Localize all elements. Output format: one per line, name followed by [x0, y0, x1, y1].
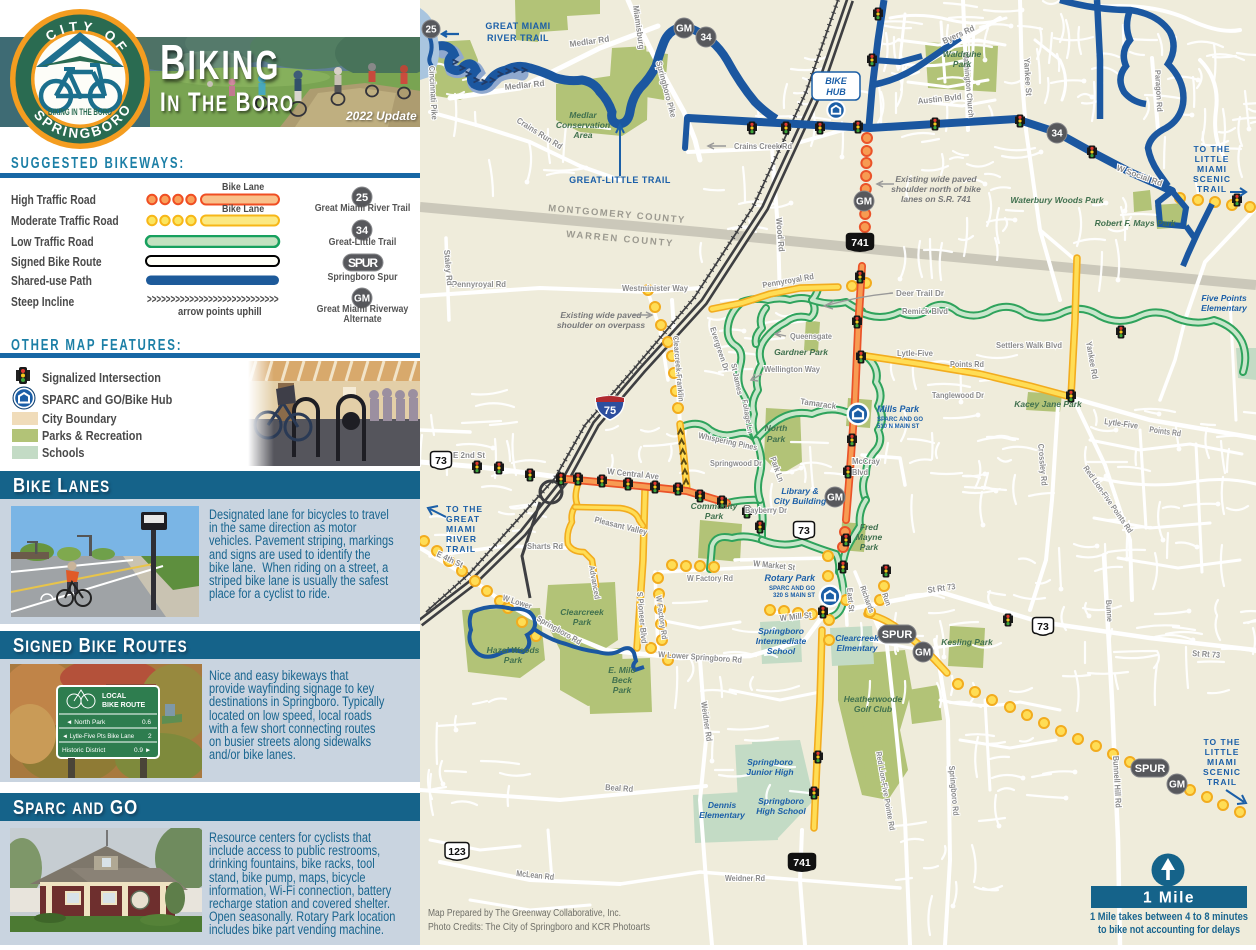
svg-text:Settlers Walk Blvd: Settlers Walk Blvd — [996, 340, 1062, 350]
svg-text:GM: GM — [1169, 780, 1185, 791]
svg-text:GM: GM — [827, 493, 843, 504]
svg-text:Intermediate: Intermediate — [756, 636, 807, 646]
svg-text:GREAT MIAMI: GREAT MIAMI — [485, 21, 550, 31]
svg-text:Clearcreek: Clearcreek — [560, 607, 605, 617]
svg-text:MIAMI: MIAMI — [1197, 164, 1227, 174]
svg-text:E 2nd St: E 2nd St — [453, 450, 485, 460]
svg-text:SPUR: SPUR — [882, 629, 913, 641]
svg-text:North: North — [765, 423, 788, 433]
svg-text:Bayberry Dr: Bayberry Dr — [745, 505, 788, 515]
svg-text:34: 34 — [1051, 129, 1063, 140]
svg-text:LITTLE: LITTLE — [1195, 154, 1230, 164]
svg-text:Five Points: Five Points — [1201, 293, 1247, 303]
svg-text:BIKING IN THE BORO: BIKING IN THE BORO — [48, 107, 112, 118]
svg-text:1 Mile: 1 Mile — [1143, 890, 1195, 907]
svg-text:Park: Park — [953, 59, 973, 69]
svg-text:MIAMI: MIAMI — [1207, 757, 1237, 767]
svg-text:TRAIL: TRAIL — [446, 544, 476, 554]
svg-text:Park: Park — [573, 617, 593, 627]
svg-text:shoulder north of bike: shoulder north of bike — [891, 184, 981, 194]
svg-text:Beal Rd: Beal Rd — [605, 782, 634, 794]
svg-text:2: 2 — [148, 733, 152, 740]
svg-text:Tanglewood Dr: Tanglewood Dr — [932, 390, 985, 400]
svg-text:shoulder on overpass: shoulder on overpass — [557, 320, 646, 330]
svg-text:Springboro: Springboro — [747, 757, 793, 767]
svg-text:Heatherwoode: Heatherwoode — [844, 694, 903, 704]
svg-text:Remick Blvd: Remick Blvd — [902, 306, 948, 316]
svg-text:◄ North Park: ◄ North Park — [66, 719, 106, 726]
svg-text:Library &: Library & — [781, 486, 818, 496]
svg-text:Historic District: Historic District — [62, 747, 106, 754]
svg-text:Westminister Way: Westminister Way — [622, 283, 688, 293]
svg-text:Mayne: Mayne — [856, 532, 883, 542]
svg-text:Wellington Way: Wellington Way — [764, 364, 820, 374]
svg-text:Kacey Jane Park: Kacey Jane Park — [1014, 399, 1083, 409]
svg-text:City Building: City Building — [774, 496, 827, 506]
svg-text:123: 123 — [448, 846, 466, 858]
svg-text:St Rt 73: St Rt 73 — [1192, 648, 1221, 660]
svg-text:Yankee St: Yankee St — [1022, 58, 1034, 97]
svg-text:Deer Trail Dr: Deer Trail Dr — [896, 288, 945, 298]
svg-text:Sharts Rd: Sharts Rd — [527, 541, 563, 551]
svg-text:GREAT-LITTLE TRAIL: GREAT-LITTLE TRAIL — [569, 175, 671, 185]
svg-text:Photo Credits: The City of Spr: Photo Credits: The City of Springboro an… — [428, 922, 650, 933]
svg-text:Blvd: Blvd — [852, 467, 868, 477]
svg-text:SPARC AND GO: SPARC AND GO — [877, 417, 923, 423]
svg-text:Waldruhe: Waldruhe — [943, 49, 982, 59]
svg-text:Rotary Park: Rotary Park — [764, 573, 816, 583]
svg-text:Junior High: Junior High — [746, 767, 793, 777]
svg-text:Dennis: Dennis — [708, 800, 737, 810]
svg-text:BIKE: BIKE — [825, 76, 847, 86]
svg-text:Elmentary: Elmentary — [836, 643, 878, 653]
svg-text:741: 741 — [851, 237, 869, 249]
svg-text:SCENIC: SCENIC — [1193, 174, 1231, 184]
svg-text:1 Mile takes between 4 to 8 mi: 1 Mile takes between 4 to 8 minutes — [1090, 911, 1248, 923]
svg-text:GM: GM — [676, 24, 692, 35]
svg-text:SCENIC: SCENIC — [1203, 767, 1241, 777]
svg-text:◄ Lytle-Five Pts Bike Lane: ◄ Lytle-Five Pts Bike Lane — [62, 734, 135, 740]
svg-text:Elementary: Elementary — [1201, 303, 1248, 313]
svg-text:73: 73 — [1037, 621, 1049, 633]
svg-text:0.9 ►: 0.9 ► — [134, 747, 151, 754]
svg-text:HUB: HUB — [826, 87, 846, 97]
svg-text:Existing wide paved: Existing wide paved — [895, 174, 977, 184]
svg-text:GM: GM — [856, 197, 872, 208]
svg-text:73: 73 — [798, 525, 810, 537]
svg-text:SPUR: SPUR — [348, 256, 378, 270]
svg-text:Map Prepared by The Greenway C: Map Prepared by The Greenway Collaborati… — [428, 908, 621, 919]
svg-text:0.6: 0.6 — [142, 719, 151, 726]
svg-text:lanes on S.R. 741: lanes on S.R. 741 — [901, 194, 971, 204]
svg-text:LOCAL: LOCAL — [102, 693, 127, 700]
svg-text:510 N MAIN ST: 510 N MAIN ST — [877, 424, 920, 430]
svg-text:Bunne: Bunne — [1104, 600, 1114, 623]
svg-text:LITTLE: LITTLE — [1205, 747, 1240, 757]
svg-text:School: School — [767, 646, 796, 656]
svg-text:34: 34 — [700, 33, 712, 44]
svg-text:Area: Area — [573, 130, 593, 140]
svg-text:MIAMI: MIAMI — [446, 524, 476, 534]
svg-text:75: 75 — [604, 405, 616, 417]
svg-text:Park: Park — [767, 434, 787, 444]
svg-text:Park: Park — [705, 511, 725, 521]
svg-text:GM: GM — [915, 648, 931, 659]
svg-text:Park: Park — [504, 655, 524, 665]
svg-text:GREAT: GREAT — [446, 514, 480, 524]
svg-text:Existing wide paved: Existing wide paved — [560, 310, 642, 320]
svg-text:Weidner Rd: Weidner Rd — [725, 873, 765, 883]
svg-text:RIVER TRAIL: RIVER TRAIL — [487, 33, 549, 43]
svg-text:Robert F. Mays Park: Robert F. Mays Park — [1095, 218, 1177, 228]
svg-text:TO THE: TO THE — [1203, 737, 1240, 747]
svg-text:to bike not accounting for del: to bike not accounting for delays — [1098, 924, 1240, 936]
svg-text:BIKE ROUTE: BIKE ROUTE — [102, 702, 146, 709]
svg-text:RIVER: RIVER — [446, 534, 477, 544]
svg-text:Springboro: Springboro — [758, 626, 804, 636]
svg-text:SPARC AND GO: SPARC AND GO — [769, 586, 815, 592]
svg-text:Waterbury Woods Park: Waterbury Woods Park — [1010, 195, 1104, 205]
svg-text:Crains Creek Rd: Crains Creek Rd — [734, 141, 792, 151]
svg-text:Springwood Dr: Springwood Dr — [710, 458, 763, 468]
svg-text:741: 741 — [793, 857, 811, 869]
svg-text:25: 25 — [425, 25, 437, 36]
svg-text:73: 73 — [435, 455, 447, 467]
svg-text:McCray: McCray — [852, 456, 880, 466]
svg-text:Queensgate: Queensgate — [790, 331, 832, 341]
svg-text:Springboro: Springboro — [758, 796, 804, 806]
svg-text:Points Rd: Points Rd — [950, 359, 984, 369]
svg-text:Mills Park: Mills Park — [877, 404, 920, 414]
svg-text:Park: Park — [860, 542, 880, 552]
svg-text:SPUR: SPUR — [1135, 763, 1166, 775]
svg-text:W Factory Rd: W Factory Rd — [687, 573, 733, 583]
svg-text:Fred: Fred — [860, 522, 879, 532]
svg-text:Park: Park — [613, 685, 633, 695]
svg-text:320 S MAIN ST: 320 S MAIN ST — [773, 593, 815, 599]
svg-text:Community: Community — [691, 501, 739, 511]
svg-text:Medlar: Medlar — [569, 110, 597, 120]
svg-text:Clearcreek: Clearcreek — [835, 633, 880, 643]
svg-text:Conservation: Conservation — [556, 120, 610, 130]
svg-text:Beck: Beck — [612, 675, 634, 685]
svg-text:Elementary: Elementary — [699, 810, 746, 820]
svg-text:TRAIL: TRAIL — [1207, 777, 1237, 787]
svg-text:TO THE: TO THE — [1193, 144, 1230, 154]
svg-text:Hazel Woods: Hazel Woods — [487, 645, 540, 655]
svg-text:TRAIL: TRAIL — [1197, 184, 1227, 194]
svg-text:Golf Club: Golf Club — [854, 704, 892, 714]
svg-text:Pennyroyal Rd: Pennyroyal Rd — [452, 279, 506, 289]
svg-text:Kesling Park: Kesling Park — [941, 637, 994, 647]
svg-text:TO THE: TO THE — [446, 504, 483, 514]
svg-text:Gardner Park: Gardner Park — [774, 347, 829, 357]
svg-text:High School: High School — [756, 806, 806, 816]
svg-text:Lytle-Five: Lytle-Five — [897, 348, 933, 358]
svg-text:E. Milo: E. Milo — [608, 665, 635, 675]
